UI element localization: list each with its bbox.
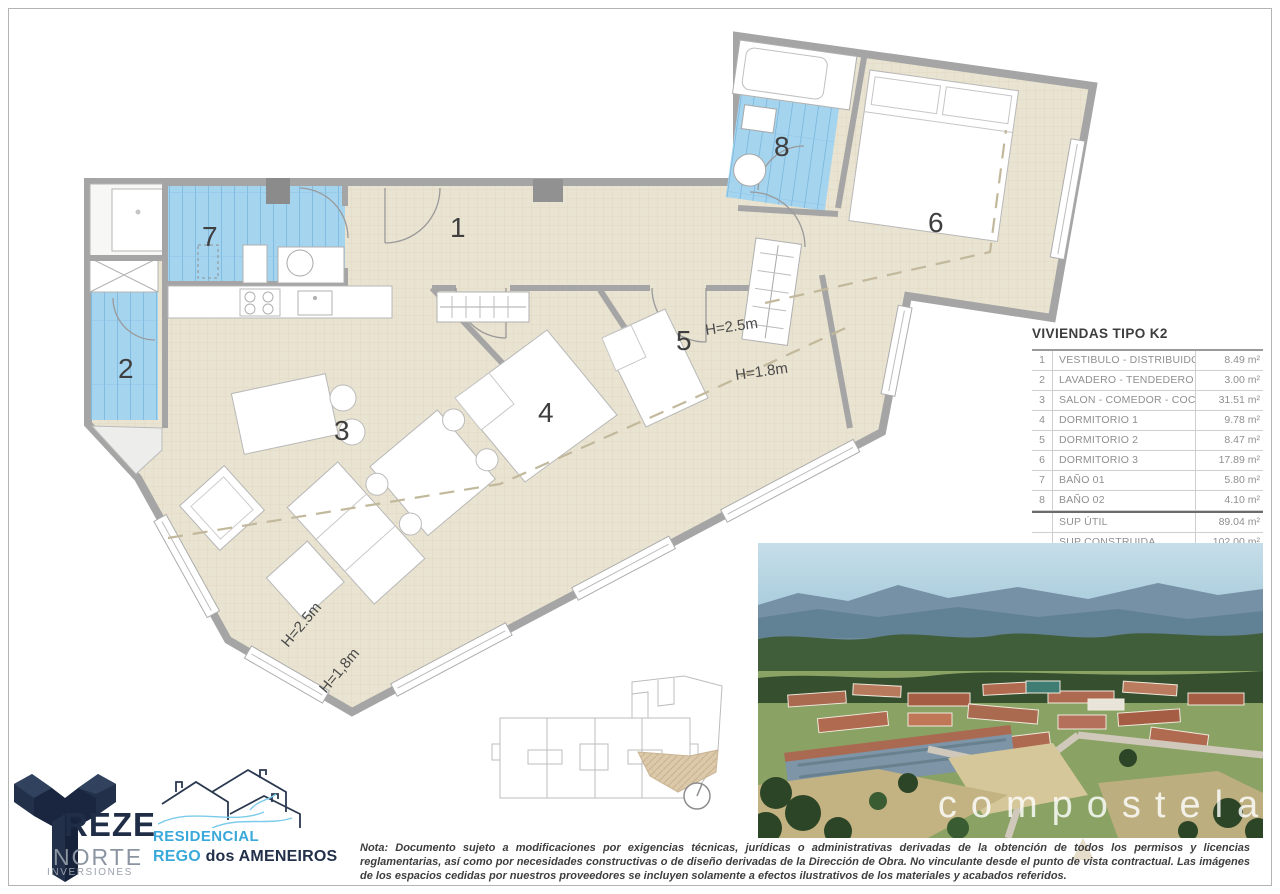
table-row: 6 DORMITORIO 3 17.89 m² (1032, 451, 1263, 471)
room-label-6: 6 (928, 207, 944, 238)
legal-note: Nota: Documento sujeto a modificaciones … (360, 842, 1250, 884)
rego-ameneiros-label: REGO dos AMENEIROS (153, 848, 337, 866)
room-label-7: 7 (202, 221, 218, 252)
photo-watermark: compostela (938, 784, 1263, 826)
table-row: 7 BAÑO 01 5.80 m² (1032, 471, 1263, 491)
residencial-label: RESIDENCIAL (153, 828, 259, 845)
wardrobe-room-4 (437, 292, 529, 322)
treze-inversiones-label: INVERSIONES (47, 867, 133, 878)
terrace-shower (90, 184, 163, 258)
table-row: 3 SALON - COMEDOR - COCINA 31.51 m² (1032, 391, 1263, 411)
north-indicator-icon (684, 783, 710, 809)
table-row: 2 LAVADERO - TENDEDERO 3.00 m² (1032, 371, 1263, 391)
treze-wordmark: REZE (64, 806, 156, 844)
room-label-4: 4 (538, 397, 554, 428)
room-label-8: 8 (774, 131, 790, 162)
electrical-box (533, 179, 563, 202)
table-row: 8 BAÑO 02 4.10 m² (1032, 491, 1263, 511)
tendedero-box (90, 258, 158, 292)
room-label-5: 5 (676, 325, 692, 356)
room-label-1: 1 (450, 212, 466, 243)
area-table: VIVIENDAS TIPO K2 1 VESTIBULO - DISTRIBU… (1032, 326, 1263, 554)
table-summary-row: SUP ÚTIL 89.04 m² (1032, 511, 1263, 533)
room-label-2: 2 (118, 353, 134, 384)
area-table-title: VIVIENDAS TIPO K2 (1032, 326, 1263, 341)
room-label-3: 3 (334, 415, 350, 446)
table-row: 1 VESTIBULO - DISTRIBUIDOR 8.49 m² (1032, 349, 1263, 371)
key-plan (488, 672, 738, 832)
electrical-box (266, 178, 290, 204)
aerial-photo: compostela (758, 543, 1263, 838)
kitchen-counter (168, 286, 392, 318)
residencial-houses-icon (152, 768, 320, 828)
table-row: 5 DORMITORIO 2 8.47 m² (1032, 431, 1263, 451)
table-row: 4 DORMITORIO 1 9.78 m² (1032, 411, 1263, 431)
